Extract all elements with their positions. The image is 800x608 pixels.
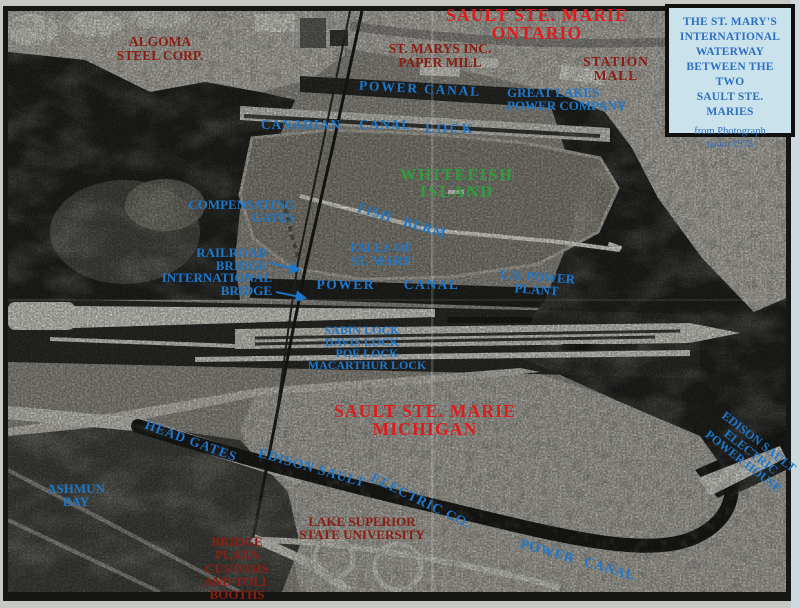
map-page: SAULT STE. MARIEONTARIOALGOMASTEEL CORP.… xyxy=(0,0,800,608)
info-box-line: TWO xyxy=(669,75,791,90)
info-box-subtitle: from Photograph xyxy=(669,125,791,138)
info-box-line: MARIES xyxy=(669,105,791,120)
info-box: THE ST. MARY'S INTERNATIONAL WATERWAY BE… xyxy=(665,4,795,137)
info-box-line: WATERWAY xyxy=(669,45,791,60)
info-box-line: INTERNATIONAL xyxy=(669,30,791,45)
info-box-line: BETWEEN THE xyxy=(669,60,791,75)
info-box-line: THE ST. MARY'S xyxy=(669,15,791,30)
info-box-line: SAULT STE. xyxy=(669,90,791,105)
info-box-subtitle: taken 1978 xyxy=(669,138,791,151)
fold-crease-horizontal xyxy=(8,299,786,301)
fold-crease-vertical xyxy=(431,11,434,592)
